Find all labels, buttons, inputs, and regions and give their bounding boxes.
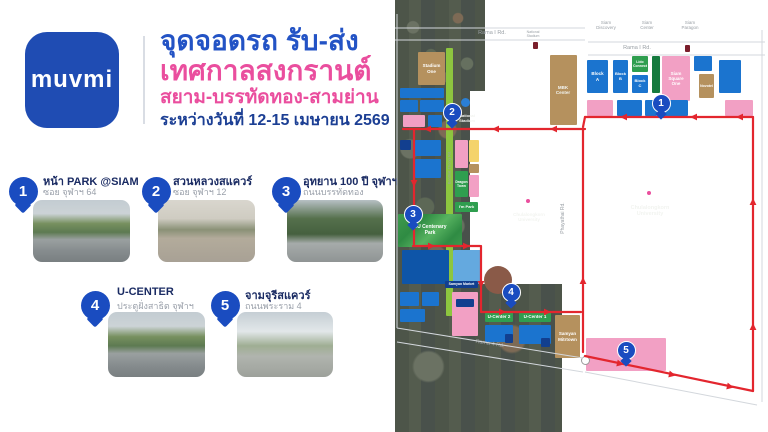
location-photo <box>158 200 255 262</box>
location-pin-marker: 5 <box>211 291 240 320</box>
route-arrow-icon <box>690 114 697 121</box>
location-subtitle: ซอย จุฬาฯ 64 <box>43 185 96 199</box>
muvmi-songkran-poster: muvmi จุดจอดรถ รับ-ส่ง เทศกาลสงกรานต์ สย… <box>0 0 768 432</box>
route-arrow-icon <box>750 323 757 330</box>
route-arrow-icon <box>463 243 470 250</box>
route-overlay <box>395 0 768 432</box>
location-subtitle: ถนนบรรทัดทอง <box>303 185 364 199</box>
shuttle-route-line <box>583 117 585 127</box>
location-list: 1หน้า PARK @SIAMซอย จุฬาฯ 642สวนหลวงสแคว… <box>0 0 395 432</box>
route-map: Stadium OneDragon TownI'm ParkCU Centena… <box>395 0 768 432</box>
location-pin-marker: 4 <box>81 291 110 320</box>
map-frame-line <box>397 342 583 372</box>
map-pin-marker: 2 <box>443 103 462 122</box>
map-frame-line <box>585 372 757 405</box>
location-photo <box>33 200 130 262</box>
map-pin-marker: 4 <box>502 283 521 302</box>
map-frame-line <box>397 328 583 358</box>
route-arrow-icon <box>544 309 551 316</box>
location-photo <box>108 312 205 377</box>
route-arrow-icon <box>580 277 587 284</box>
route-arrow-icon <box>411 180 418 187</box>
map-pin-marker: 3 <box>404 205 423 224</box>
route-arrow-icon <box>736 114 743 121</box>
route-arrow-icon <box>492 126 499 133</box>
route-arrow-icon <box>620 114 627 121</box>
route-arrow-icon <box>478 281 485 288</box>
map-pin-marker: 5 <box>617 341 636 360</box>
location-pin-marker: 3 <box>272 177 301 206</box>
route-arrow-icon <box>424 126 431 133</box>
location-photo <box>237 312 333 377</box>
route-arrow-icon <box>499 309 506 316</box>
route-arrow-icon <box>750 198 757 205</box>
location-pin-marker: 2 <box>142 177 171 206</box>
route-arrow-icon <box>550 126 557 133</box>
location-photo <box>287 200 383 262</box>
location-pin-marker: 1 <box>9 177 38 206</box>
location-subtitle: ซอย จุฬาฯ 12 <box>173 185 226 199</box>
route-arrow-icon <box>428 243 435 250</box>
location-subtitle: ประตูฝั่งสาธิต จุฬาฯ <box>117 299 194 313</box>
map-pin-marker: 1 <box>652 94 671 113</box>
location-subtitle: ถนนพระราม 4 <box>245 299 302 313</box>
location-title: U-CENTER <box>117 286 174 298</box>
